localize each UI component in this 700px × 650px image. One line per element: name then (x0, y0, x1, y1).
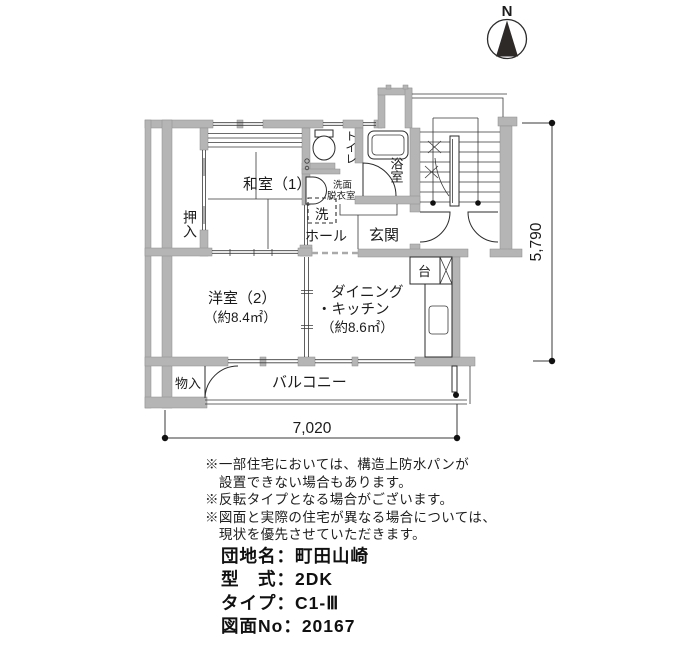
monoire-door-arc (205, 366, 238, 398)
label-yoshitsu-area: （約8.4㎡） (204, 310, 277, 325)
label-laundry: 洗 (315, 207, 329, 222)
dimension-width: 7,020 (162, 404, 460, 441)
label-yoshitsu: 洋室（2） (208, 290, 276, 307)
label-dk-1: ダイニング (331, 284, 404, 301)
north-arrow-icon: N (488, 3, 527, 59)
label-washitsu: 和室（1） (243, 176, 311, 193)
label-genkan: 玄関 (369, 227, 399, 244)
info-plan-type: タイプ：C1-Ⅲ (221, 592, 481, 615)
note-line-5: 現状を優先させていただきます。 (205, 526, 515, 544)
info-danchi-name: 団地名：町田山崎 (221, 545, 481, 568)
label-dk-2: ・キッチン (317, 302, 390, 318)
label-dk-area: （約8.6㎡） (321, 320, 394, 335)
dimension-width-value: 7,020 (293, 420, 332, 437)
label-oshiire: 押入 (182, 210, 198, 238)
notes-block: ※一部住宅においては、構造上防水パンが 設置できない場合もあります。 ※反転タイ… (205, 456, 515, 544)
label-senmen-1: 洗面 (333, 179, 352, 191)
label-balcony: バルコニー (272, 374, 347, 391)
floorplan-page: 和室（1） 押入 トイレ 洗面 脱衣室 洗 ホール 玄関 浴室 台 洋室（2） … (0, 0, 700, 650)
dimension-depth: 5,790 (522, 120, 555, 364)
info-drawing-number: 図面No：20167 (221, 615, 481, 638)
note-line-3: ※反転タイプとなる場合がございます。 (205, 491, 515, 509)
dimension-lines: 7,020 5,790 (162, 120, 555, 441)
staircase (412, 94, 507, 206)
label-senmen-2: 脱衣室 (327, 190, 356, 202)
entrance-doors (420, 212, 498, 242)
north-label: N (502, 3, 513, 20)
label-toilet: トイレ (344, 130, 356, 165)
genkan-step (340, 204, 397, 215)
label-monoire: 物入 (175, 376, 201, 391)
note-line-2: 設置できない場合もあります。 (205, 474, 515, 492)
label-hall: ホール (305, 228, 347, 244)
bathtub-icon (368, 131, 408, 159)
label-bathroom: 浴室 (389, 157, 404, 183)
note-line-1: ※一部住宅においては、構造上防水パンが (205, 456, 515, 474)
property-info-block: 団地名：町田山崎 型 式：2DK タイプ：C1-Ⅲ 図面No：20167 (221, 545, 481, 638)
note-line-4: ※図面と実際の住宅が異なる場合については、 (205, 509, 515, 527)
label-counter: 台 (418, 264, 431, 279)
info-model-type: 型 式：2DK (221, 568, 481, 591)
dimension-depth-value: 5,790 (528, 222, 545, 261)
